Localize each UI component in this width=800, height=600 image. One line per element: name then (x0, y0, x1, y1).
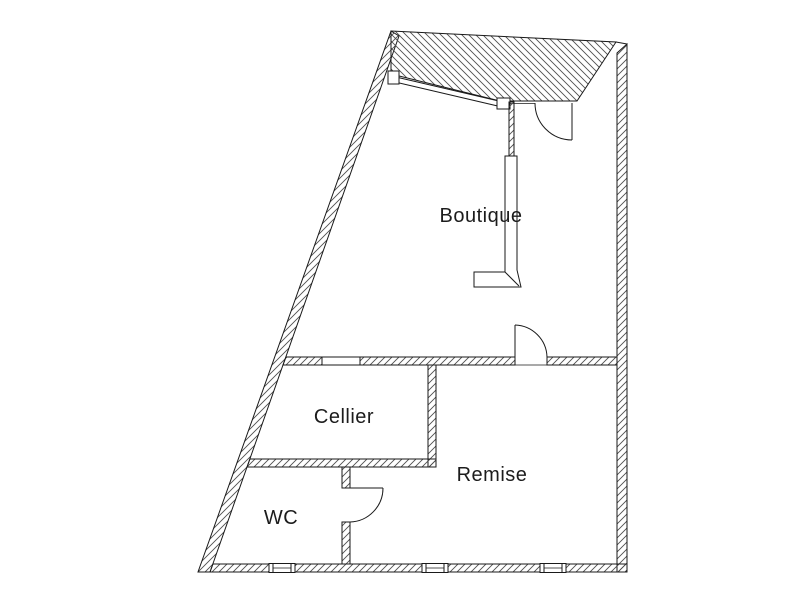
mid-wall-left-segment (283, 357, 322, 365)
cellier-remise-partition (428, 365, 436, 467)
window-remise-right (540, 564, 566, 573)
room-label-boutique: Boutique (440, 205, 523, 227)
boutique-partition-stub (509, 102, 514, 156)
room-label-wc: WC (264, 507, 298, 529)
wc-wall-lower-segment (342, 522, 350, 564)
mid-wall-window (322, 357, 360, 365)
window-remise-left (422, 564, 448, 573)
mid-wall-right-segment (547, 357, 617, 365)
right-wall (617, 44, 627, 572)
storefront-end-block-left (388, 71, 399, 84)
wc-wall-upper-segment (342, 467, 350, 488)
mid-wall-center-segment (360, 357, 515, 365)
floor-plan-drawing: Boutique Cellier Remise WC (0, 0, 800, 600)
window-wc (269, 564, 295, 573)
room-label-cellier: Cellier (314, 406, 374, 428)
floor-plan-page: Boutique Cellier Remise WC (0, 0, 800, 600)
room-label-remise: Remise (457, 464, 528, 486)
cellier-bottom-wall (247, 459, 436, 467)
storefront-end-block-right (497, 98, 510, 109)
canvas-background (0, 0, 800, 600)
